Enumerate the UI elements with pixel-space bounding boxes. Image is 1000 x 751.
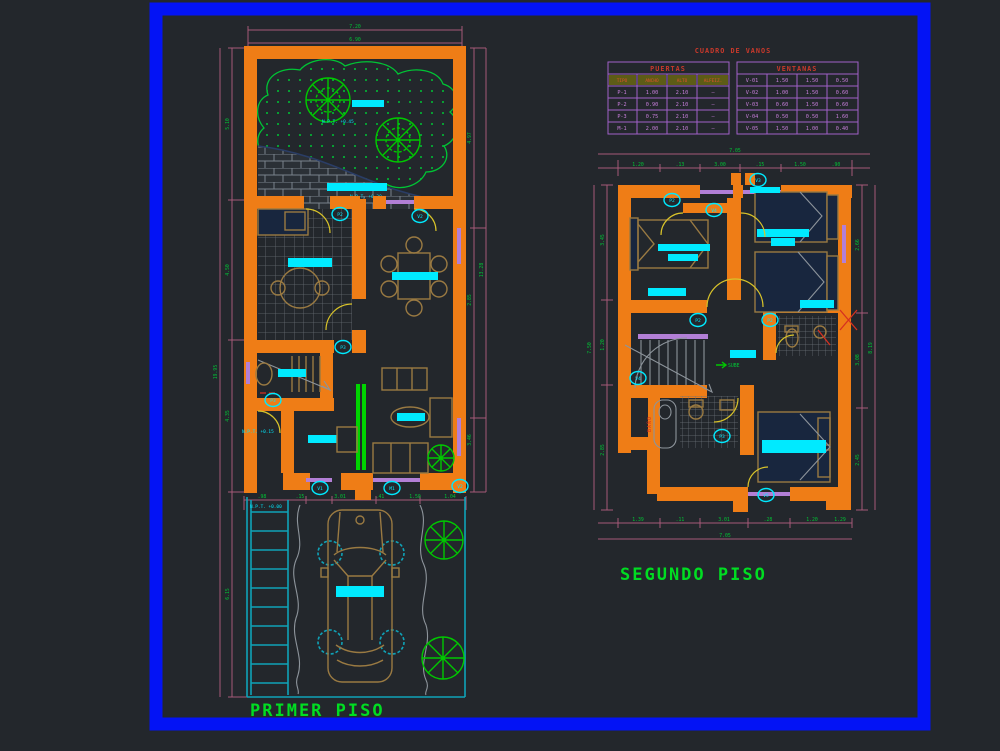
window-line (246, 362, 250, 384)
svg-text:4.97: 4.97 (467, 132, 473, 144)
svg-text:1.39: 1.39 (632, 517, 644, 523)
window-line (842, 225, 846, 263)
svg-text:V4: V4 (711, 208, 717, 214)
svg-text:—: — (711, 90, 715, 96)
svg-text:V-01: V-01 (746, 78, 759, 84)
svg-text:1.50: 1.50 (806, 78, 819, 84)
sube-text: SUBE (728, 363, 740, 369)
room-label-cocina (288, 258, 332, 267)
svg-text:3.00: 3.00 (714, 162, 726, 168)
svg-text:M-1: M-1 (617, 126, 626, 132)
car (318, 510, 404, 682)
svg-text:P2: P2 (669, 198, 675, 204)
puertas-header-alf: ALFEIZ. (704, 78, 723, 84)
second-floor-plan: 1.20 .13 3.00 .15 1.50 .90 7.05 3.45 1.2… (587, 148, 875, 585)
glass-partition (362, 384, 366, 470)
door-swing (661, 213, 683, 235)
label-bar (750, 187, 780, 193)
svg-text:2.10: 2.10 (676, 102, 689, 108)
svg-text:7.05: 7.05 (729, 148, 741, 154)
svg-text:V1: V1 (317, 486, 323, 492)
npt-garage: N.P.T. +0.00 (250, 504, 282, 510)
svg-text:5.10: 5.10 (225, 118, 231, 130)
svg-text:V-02: V-02 (746, 90, 759, 96)
svg-text:V4: V4 (635, 376, 641, 382)
room-label-jardin (352, 100, 384, 107)
room-label-hall2 (730, 350, 756, 358)
puertas-header-alto: ALTO (677, 78, 688, 84)
svg-text:V2: V2 (417, 214, 423, 220)
svg-text:13.28: 13.28 (479, 263, 485, 278)
garage-ramp (251, 500, 288, 695)
window-line (700, 190, 733, 194)
schedule-title: CUADRO DE VANOS (695, 47, 771, 55)
svg-text:1.20: 1.20 (632, 162, 644, 168)
svg-text:P3: P3 (270, 398, 276, 404)
svg-text:1.00: 1.00 (646, 90, 659, 96)
armchair (337, 427, 357, 452)
tree-icon (376, 118, 420, 162)
svg-text:P2: P2 (337, 212, 343, 218)
puertas-table: PUERTAS TIPO ANCHO ALTO ALFEIZ. P-1 1.00… (608, 62, 729, 134)
window-line (457, 228, 461, 264)
svg-text:V-05: V-05 (746, 126, 759, 132)
room-label-dorm2b (771, 238, 795, 246)
svg-text:1.50: 1.50 (776, 126, 789, 132)
room-label-hall (308, 435, 337, 443)
vanos-schedule: CUADRO DE VANOS PUERTAS TIPO ANCHO ALTO … (608, 47, 858, 134)
svg-text:P-3: P-3 (617, 114, 626, 120)
svg-text:V-04: V-04 (746, 114, 759, 120)
puertas-title: PUERTAS (650, 65, 686, 73)
npt-garden: N.P.T. +0.45 (322, 119, 354, 125)
second-floor-title: SEGUNDO PISO (620, 565, 767, 585)
room-label-dorm1 (658, 244, 710, 251)
svg-text:0.50: 0.50 (806, 114, 819, 120)
first-floor-plan: 7.20 6.90 5.10 4.50 4.35 6.15 19.95 4.97… (213, 24, 486, 721)
tree-icon (422, 637, 464, 679)
armchair (430, 398, 452, 437)
svg-text:2.10: 2.10 (676, 114, 689, 120)
puertas-row-2: P-2 0.90 2.10 — (617, 102, 715, 108)
svg-text:P2: P2 (695, 318, 701, 324)
room-label-patio (327, 183, 387, 191)
tree-icon (306, 78, 350, 122)
bedroom-3 (748, 412, 830, 487)
svg-text:0.60: 0.60 (776, 102, 789, 108)
svg-text:V2: V2 (457, 484, 463, 490)
svg-text:1.20: 1.20 (806, 517, 818, 523)
svg-text:.11: .11 (676, 517, 685, 523)
svg-text:V3: V3 (755, 178, 761, 184)
room-label-bano1 (278, 369, 306, 377)
svg-text:—: — (711, 102, 715, 108)
puertas-header-ancho: ANCHO (645, 78, 659, 84)
svg-text:7.50: 7.50 (587, 342, 593, 354)
svg-text:0.60: 0.60 (836, 90, 849, 96)
svg-text:P3: P3 (719, 434, 725, 440)
bed-headboard (827, 195, 838, 239)
svg-text:7.20: 7.20 (349, 24, 361, 30)
room-label-garage (336, 586, 384, 597)
svg-text:P-1: P-1 (617, 90, 626, 96)
svg-text:0.90: 0.90 (646, 102, 659, 108)
svg-text:2.10: 2.10 (676, 126, 689, 132)
svg-text:V-03: V-03 (746, 102, 759, 108)
car-mirror (392, 568, 399, 577)
window-line (748, 492, 790, 496)
kitchen (258, 209, 352, 340)
svg-text:.98: .98 (258, 494, 267, 500)
room-label-dorm1b (668, 254, 698, 261)
dining-room (381, 237, 447, 316)
svg-text:.15: .15 (296, 494, 305, 500)
svg-text:1.50: 1.50 (806, 90, 819, 96)
svg-text:—: — (711, 126, 715, 132)
living-room (337, 368, 454, 473)
ventanas-table: VENTANAS V-01 1.50 1.50 0.50 V-02 1.00 1… (737, 62, 858, 134)
svg-text:1.50: 1.50 (409, 494, 421, 500)
svg-text:8.19: 8.19 (868, 342, 874, 354)
svg-text:3.01: 3.01 (334, 494, 346, 500)
window-line (386, 200, 414, 204)
svg-text:4.50: 4.50 (225, 264, 231, 276)
svg-text:.41: .41 (376, 494, 385, 500)
svg-text:1.50: 1.50 (776, 78, 789, 84)
svg-text:1.20: 1.20 (600, 339, 606, 351)
stair-nosing (638, 334, 708, 339)
svg-text:3.45: 3.45 (600, 234, 606, 246)
puertas-row-1: P-1 1.00 2.10 — (617, 90, 715, 96)
bedroom-1 (630, 213, 710, 296)
sofa (382, 368, 427, 390)
svg-text:2.66: 2.66 (855, 239, 861, 251)
npt-hall: N.P.T. +0.15 (242, 429, 274, 435)
svg-text:0.50: 0.50 (836, 78, 849, 84)
car-mirror (321, 568, 328, 577)
svg-text:1.00: 1.00 (806, 126, 819, 132)
toilet (256, 363, 272, 385)
ventanas-title: VENTANAS (777, 65, 818, 73)
puertas-row-3: P-3 0.75 2.10 — (617, 114, 715, 120)
plant-icon (428, 445, 454, 471)
label-bar (800, 300, 834, 308)
svg-text:6.90: 6.90 (349, 37, 361, 43)
chair (381, 281, 397, 297)
drawing-canvas: CUADRO DE VANOS PUERTAS TIPO ANCHO ALTO … (0, 0, 1000, 751)
svg-text:2.00: 2.00 (646, 126, 659, 132)
svg-text:1.00: 1.00 (776, 90, 789, 96)
bathtub-drain (659, 405, 671, 419)
svg-text:6.15: 6.15 (225, 588, 231, 600)
window-line (373, 478, 420, 482)
puertas-header-tipo: TIPO (617, 78, 628, 84)
svg-text:P2: P2 (767, 318, 773, 324)
svg-text:2.10: 2.10 (676, 90, 689, 96)
room-label-dorm3 (762, 440, 826, 453)
svg-text:.90: .90 (832, 162, 841, 168)
svg-text:19.95: 19.95 (213, 365, 219, 380)
chair (406, 300, 422, 316)
bano-text: BAÑO (646, 416, 653, 432)
chair (406, 237, 422, 253)
svg-text:V5: V5 (763, 493, 769, 499)
cad-sheet: CUADRO DE VANOS PUERTAS TIPO ANCHO ALTO … (0, 0, 1000, 751)
first-floor-title: PRIMER PISO (250, 701, 385, 721)
ground-contour (294, 505, 300, 694)
second-floor-stairs (625, 334, 712, 392)
svg-text:1.50: 1.50 (806, 102, 819, 108)
kitchen-counter (258, 209, 308, 235)
svg-text:1.60: 1.60 (836, 114, 849, 120)
svg-text:—: — (711, 114, 715, 120)
garage: N.P.T. +0.00 (247, 497, 465, 697)
svg-text:2.85: 2.85 (600, 444, 606, 456)
window-line (457, 418, 461, 456)
svg-text:3.08: 3.08 (855, 354, 861, 366)
svg-text:3.46: 3.46 (467, 434, 473, 446)
svg-text:7.05: 7.05 (719, 533, 731, 539)
svg-text:0.60: 0.60 (836, 102, 849, 108)
svg-text:.15: .15 (756, 162, 765, 168)
svg-text:P3: P3 (340, 345, 346, 351)
svg-text:3.01: 3.01 (718, 517, 730, 523)
svg-text:0.50: 0.50 (776, 114, 789, 120)
svg-text:0.40: 0.40 (836, 126, 849, 132)
bedroom-2 (741, 187, 838, 312)
room-label-sala (397, 413, 425, 421)
sube-arrow (716, 362, 726, 368)
bed-headboard (630, 218, 638, 270)
svg-text:2.85: 2.85 (467, 294, 473, 306)
svg-text:M1: M1 (389, 486, 395, 492)
chair (431, 256, 447, 272)
svg-text:P-2: P-2 (617, 102, 626, 108)
svg-text:4.35: 4.35 (225, 410, 231, 422)
puertas-row-4: M-1 2.00 2.10 — (617, 126, 715, 132)
tree-icon (425, 521, 463, 559)
door-swing (414, 209, 436, 231)
chair (431, 281, 447, 297)
svg-text:.13: .13 (676, 162, 685, 168)
room-label-comedor (392, 272, 438, 280)
svg-text:1.04: 1.04 (444, 494, 456, 500)
svg-text:.28: .28 (764, 517, 773, 523)
sofa (373, 443, 428, 473)
label-bar (648, 288, 686, 296)
chair (381, 256, 397, 272)
svg-text:0.75: 0.75 (646, 114, 659, 120)
svg-text:1.29: 1.29 (834, 517, 846, 523)
svg-text:1.50: 1.50 (794, 162, 806, 168)
svg-text:2.45: 2.45 (855, 454, 861, 466)
